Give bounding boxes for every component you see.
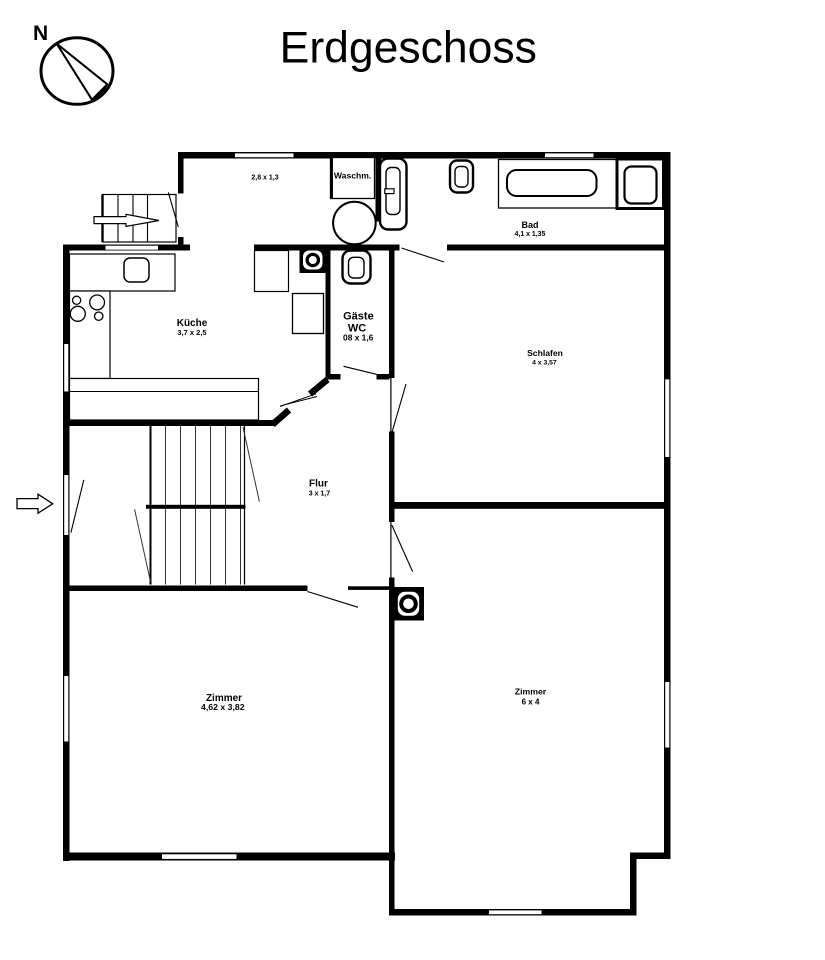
svg-text:Gäste: Gäste [343,310,374,322]
svg-text:Waschm.: Waschm. [334,171,371,181]
svg-text:6 x 4: 6 x 4 [522,698,540,707]
svg-text:3 x 1,7: 3 x 1,7 [309,490,331,497]
svg-text:N: N [33,22,48,45]
svg-text:Bad: Bad [521,220,538,230]
svg-text:2,8 x 1,3: 2,8 x 1,3 [251,175,278,182]
svg-text:4,1 x 1,35: 4,1 x 1,35 [515,231,546,238]
svg-text:Erdgeschoss: Erdgeschoss [280,24,537,73]
svg-text:4 x 3,57: 4 x 3,57 [532,359,557,366]
svg-text:Zimmer: Zimmer [515,687,547,697]
svg-text:3,7 x 2,5: 3,7 x 2,5 [177,328,206,337]
svg-text:4,62 x 3,82: 4,62 x 3,82 [201,702,245,712]
svg-text:08 x 1,6: 08 x 1,6 [343,333,374,343]
svg-text:Flur: Flur [309,478,328,489]
svg-text:Schlafen: Schlafen [527,348,563,358]
